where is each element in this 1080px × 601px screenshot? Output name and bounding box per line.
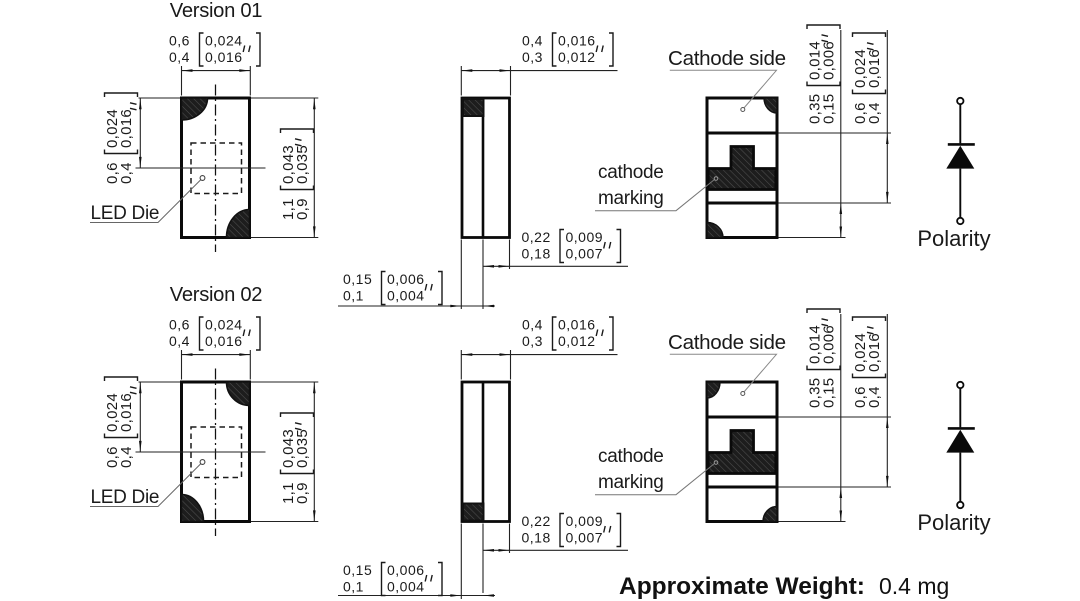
svg-text:0,006: 0,006 [821,41,838,80]
svg-text:0,035: 0,035 [294,145,311,184]
svg-text:0,024: 0,024 [205,33,243,49]
svg-text:0,016: 0,016 [558,317,596,333]
svg-text:Version 02: Version 02 [170,284,262,306]
svg-text:0,009: 0,009 [566,229,604,245]
svg-text:0,016: 0,016 [866,333,883,372]
svg-text:0,4: 0,4 [118,446,135,468]
svg-text:0,15: 0,15 [821,378,838,408]
svg-text:0,9: 0,9 [294,198,311,220]
svg-text:0,15: 0,15 [343,562,372,578]
svg-text:0,22: 0,22 [522,513,551,529]
svg-text:0,012: 0,012 [558,333,596,349]
svg-text:Cathode side: Cathode side [668,331,786,354]
svg-text:0,007: 0,007 [566,246,604,262]
svg-text:0,18: 0,18 [522,530,551,546]
svg-text:0,006: 0,006 [387,562,425,578]
svg-text:0,1: 0,1 [343,579,364,595]
svg-text:0,004: 0,004 [387,288,425,304]
svg-text:0,4: 0,4 [169,333,190,349]
svg-text:marking: marking [598,188,663,209]
svg-text:0,009: 0,009 [566,513,604,529]
svg-text:0,1: 0,1 [343,288,364,304]
svg-text:0,006: 0,006 [387,271,425,287]
svg-text:0,016: 0,016 [205,49,243,65]
svg-text:0,012: 0,012 [558,49,596,65]
svg-text:0,016: 0,016 [866,49,883,88]
svg-text:0,15: 0,15 [343,271,372,287]
svg-text:0,016: 0,016 [118,393,135,432]
svg-text:0,15: 0,15 [821,94,838,124]
svg-text:Polarity: Polarity [917,510,990,535]
svg-text:0,016: 0,016 [558,33,596,49]
svg-text:0,22: 0,22 [522,229,551,245]
svg-text:0,004: 0,004 [387,579,425,595]
svg-text:Version 01: Version 01 [170,0,262,22]
svg-text:0,016: 0,016 [118,109,135,148]
svg-text:0,18: 0,18 [522,246,551,262]
svg-text:Approximate Weight:: Approximate Weight: [619,573,865,600]
svg-text:0,035: 0,035 [294,429,311,468]
svg-text:0,006: 0,006 [821,325,838,364]
svg-text:LED Die: LED Die [91,487,160,508]
svg-text:0,3: 0,3 [522,49,543,65]
svg-text:0,016: 0,016 [205,333,243,349]
svg-text:0,3: 0,3 [522,333,543,349]
svg-text:0,4: 0,4 [866,386,883,408]
svg-text:LED Die: LED Die [91,203,160,224]
svg-text:0,4: 0,4 [118,162,135,184]
svg-text:Cathode side: Cathode side [668,47,786,70]
svg-text:0,4: 0,4 [522,317,543,333]
svg-text:0,024: 0,024 [205,317,243,333]
svg-text:marking: marking [598,472,663,493]
svg-text:0,007: 0,007 [566,530,604,546]
svg-text:0.4 mg: 0.4 mg [879,573,949,599]
svg-text:Polarity: Polarity [917,226,990,251]
svg-text:cathode: cathode [598,446,664,467]
svg-text:0,4: 0,4 [169,49,190,65]
svg-text:0,4: 0,4 [866,102,883,124]
svg-text:0,6: 0,6 [169,317,190,333]
svg-text:cathode: cathode [598,162,664,183]
svg-text:0,6: 0,6 [169,33,190,49]
svg-text:0,9: 0,9 [294,482,311,504]
svg-text:0,4: 0,4 [522,33,543,49]
